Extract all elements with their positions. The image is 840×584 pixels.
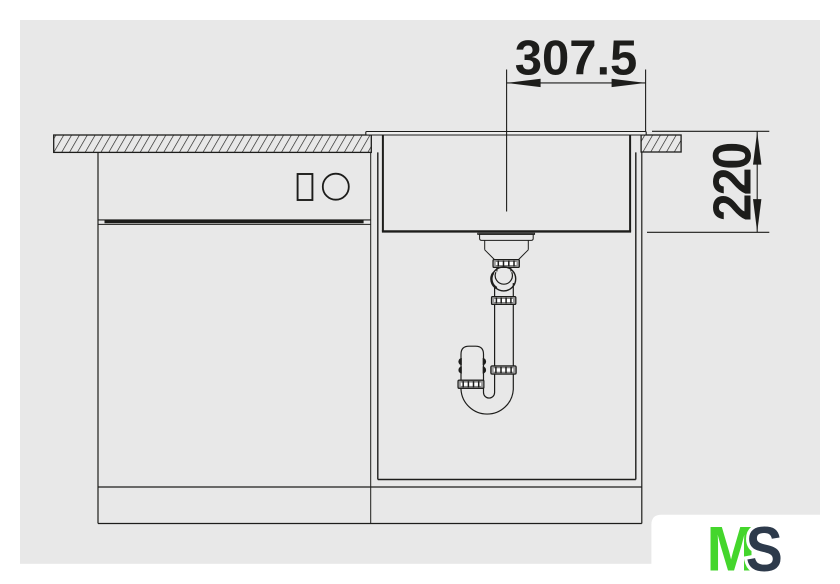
svg-text:S: S [746,514,783,584]
svg-text:307.5: 307.5 [515,31,638,85]
svg-text:220: 220 [703,144,763,222]
